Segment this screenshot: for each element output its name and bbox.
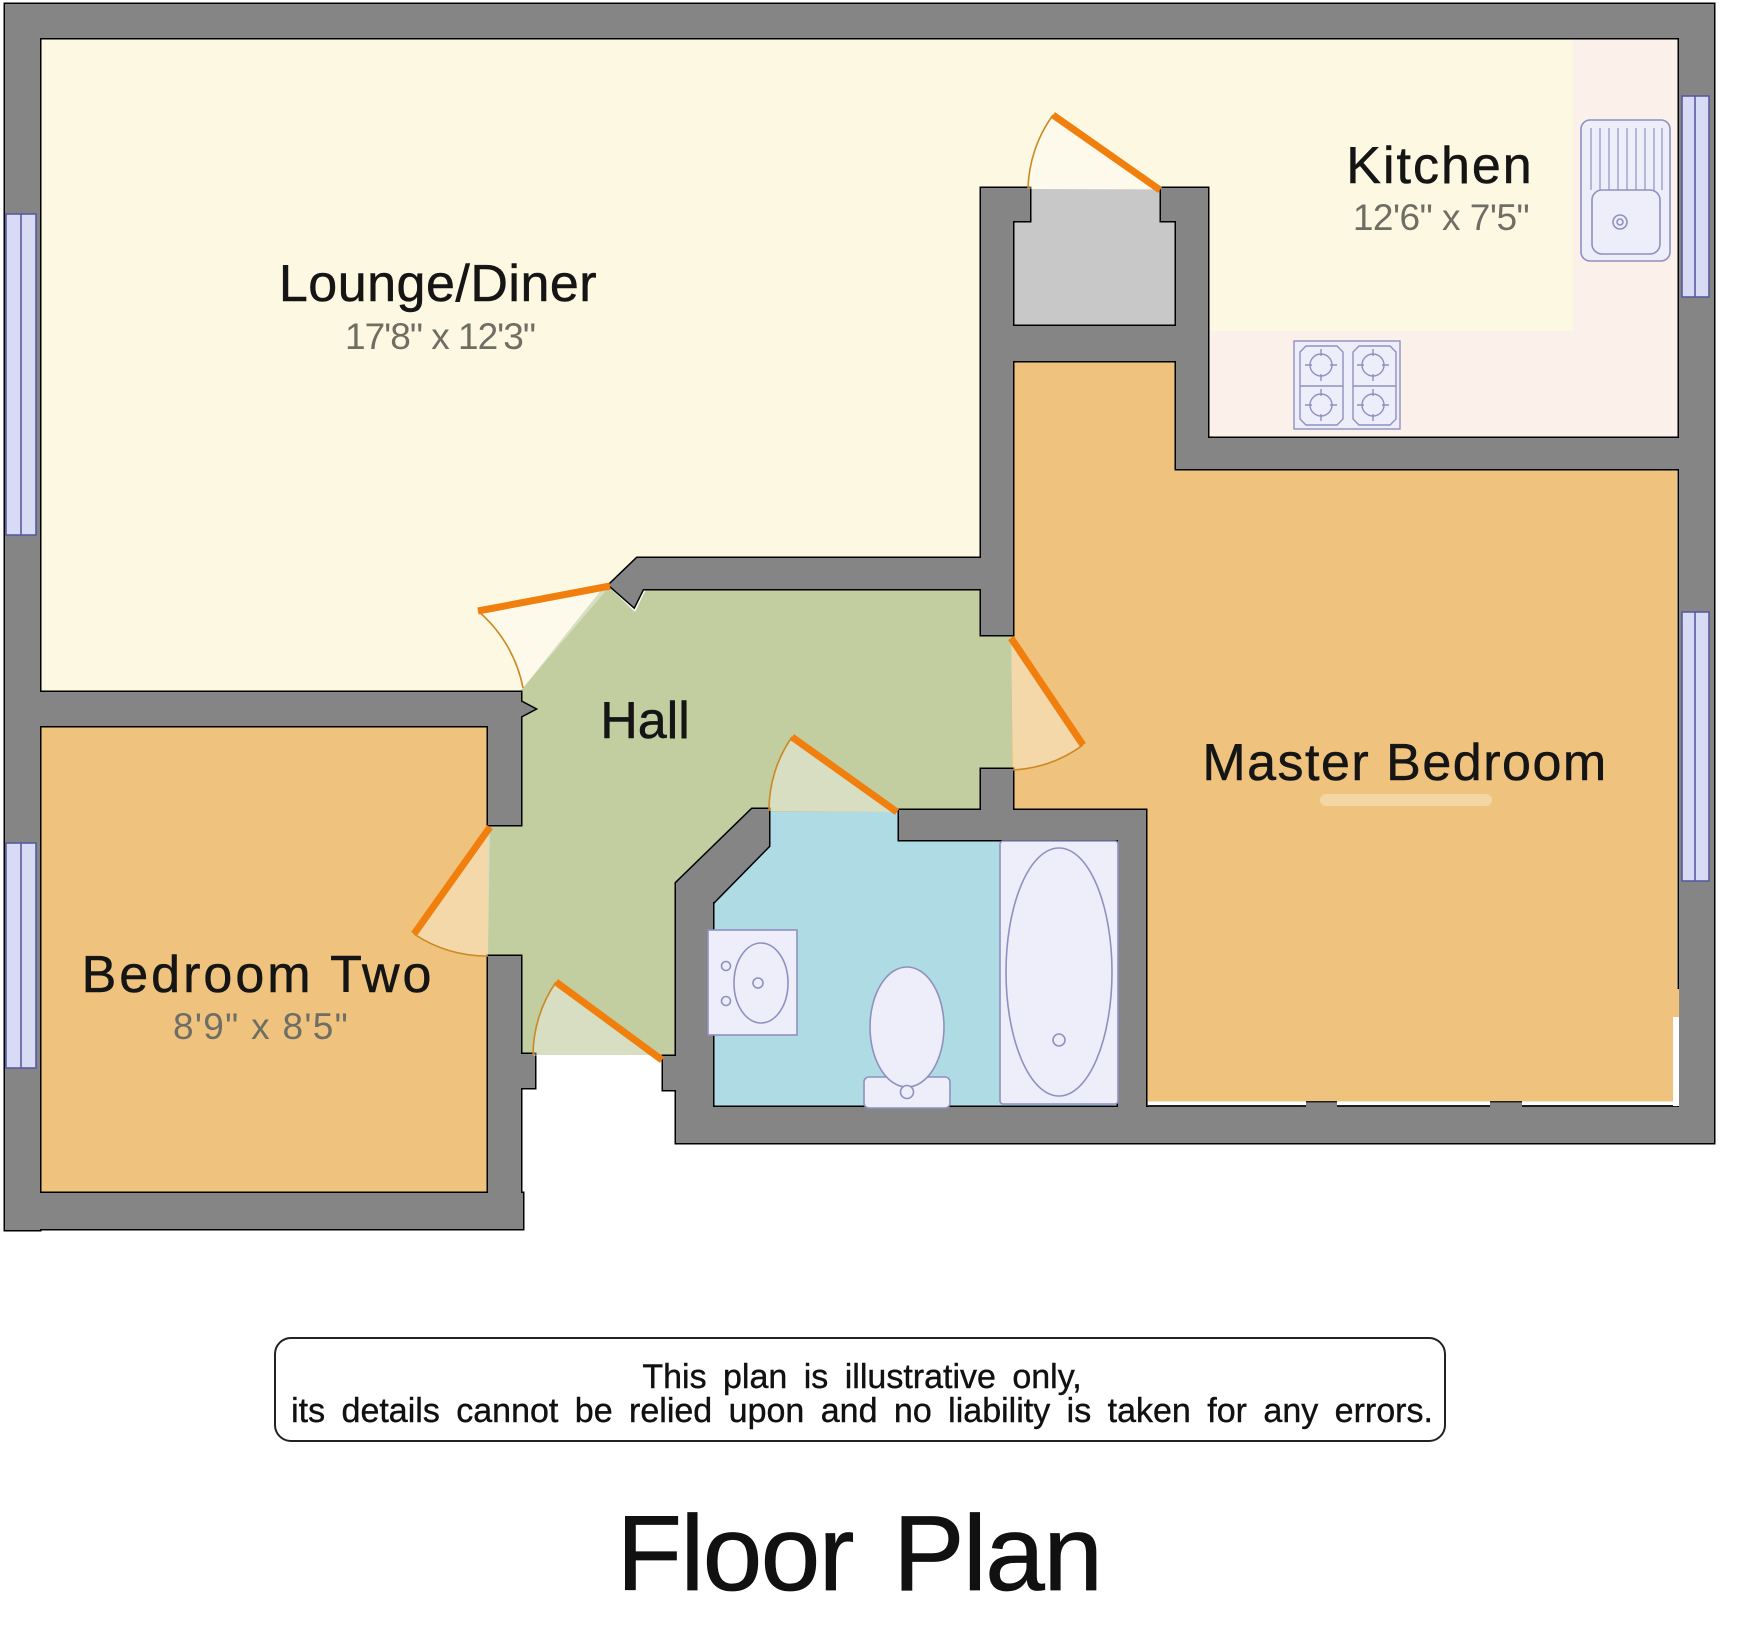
svg-text:This plan is illustrative only: This plan is illustrative only, bbox=[642, 1358, 1081, 1396]
svg-text:Kitchen: Kitchen bbox=[1346, 137, 1533, 195]
svg-text:17'8" x 12'3": 17'8" x 12'3" bbox=[345, 316, 535, 357]
svg-text:Hall: Hall bbox=[600, 692, 690, 750]
svg-text:12'6" x 7'5": 12'6" x 7'5" bbox=[1353, 197, 1529, 238]
svg-text:Floor Plan: Floor Plan bbox=[617, 1493, 1102, 1613]
svg-text:Master Bedroom: Master Bedroom bbox=[1202, 734, 1607, 792]
svg-text:Bedroom Two: Bedroom Two bbox=[82, 946, 435, 1004]
svg-text:8'9" x 8'5": 8'9" x 8'5" bbox=[173, 1006, 349, 1047]
svg-text:its details cannot be relied u: its details cannot be relied upon and no… bbox=[291, 1392, 1433, 1430]
svg-text:Lounge/Diner: Lounge/Diner bbox=[279, 255, 597, 313]
